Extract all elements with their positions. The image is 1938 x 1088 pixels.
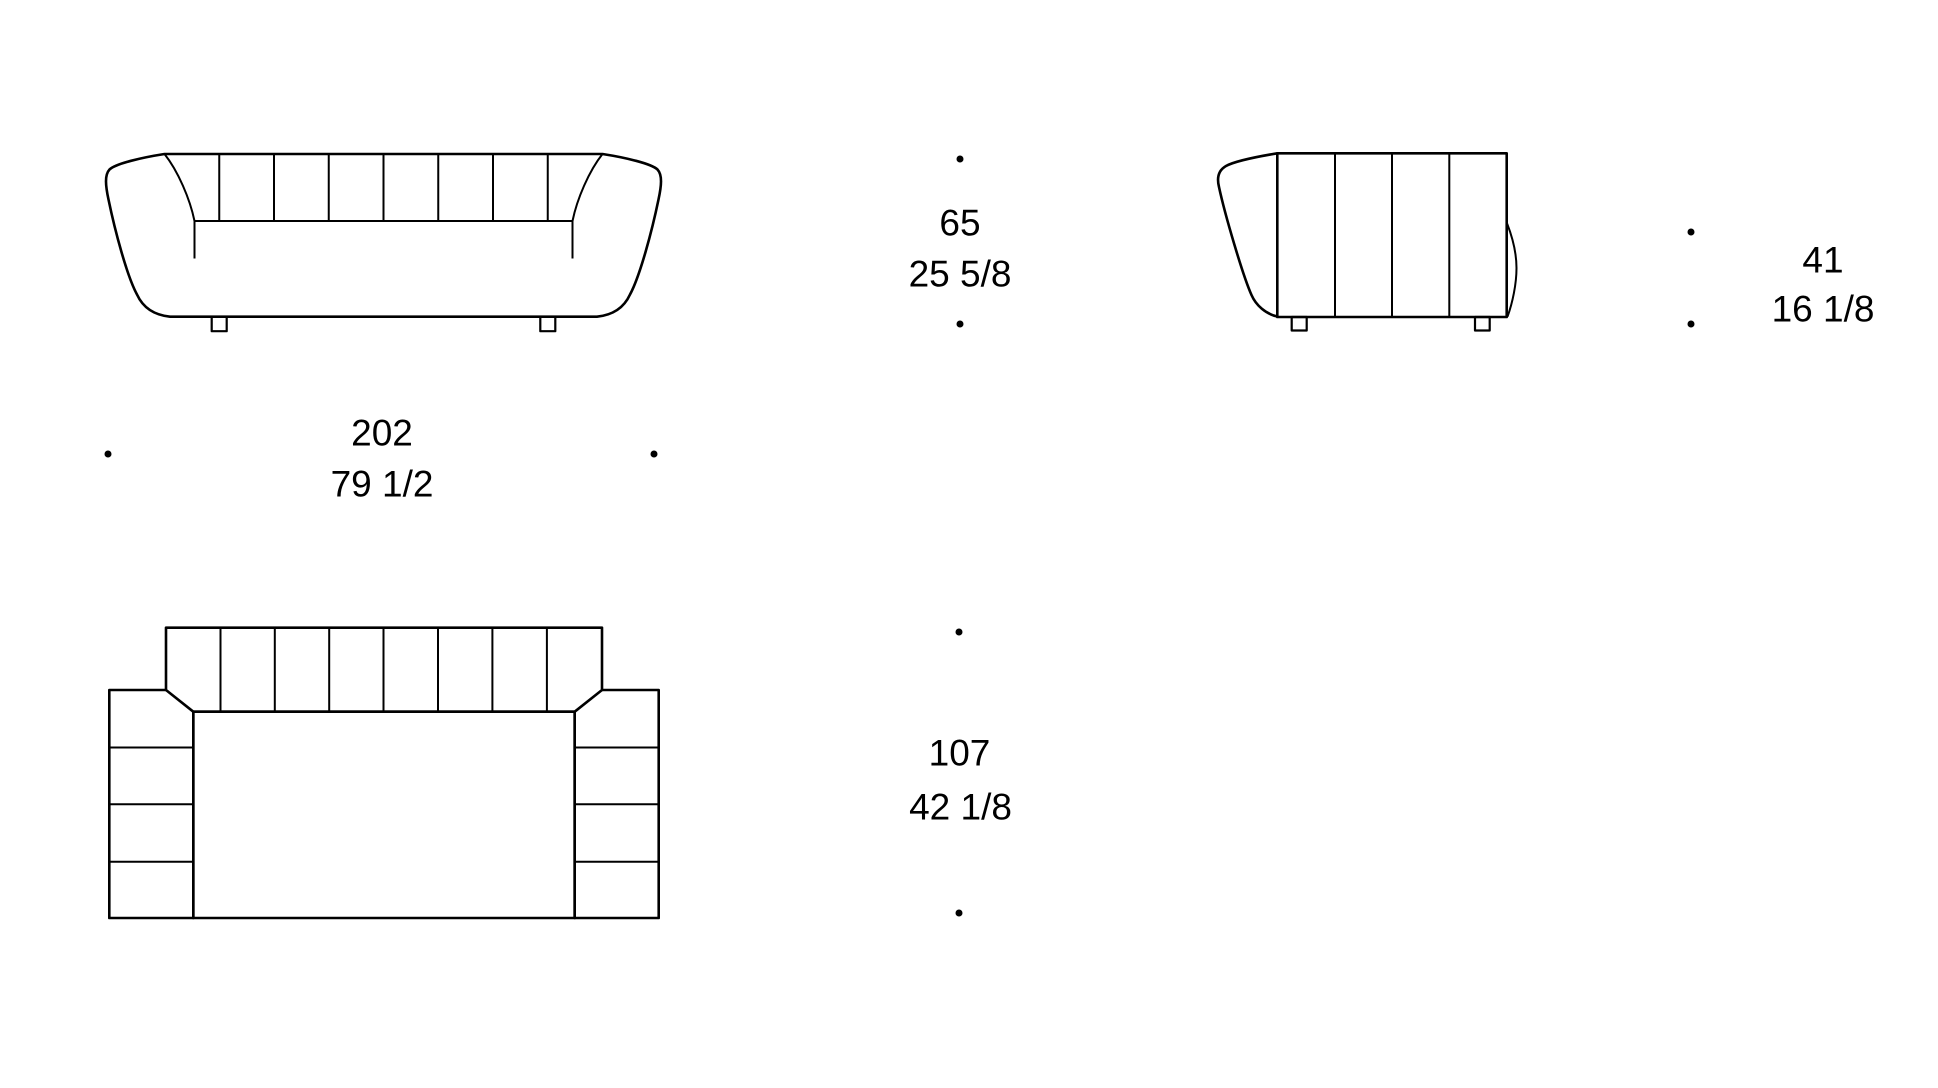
overall-depth-inches-label: 42 1/8 (909, 789, 1012, 826)
overall-width-inches-label: 79 1/2 (331, 466, 434, 503)
top-seat-outline (193, 712, 574, 918)
overall-height-inches-label: 25 5/8 (909, 255, 1012, 292)
seat-height-cm-label: 41 (1802, 242, 1843, 279)
depth-dimension-top-dot (956, 629, 963, 636)
width-dimension-left-dot (105, 451, 112, 458)
top-left-arm-section-lines (109, 748, 193, 862)
height-dimension-top-dot (957, 156, 964, 163)
side-view-drawing (1218, 153, 1516, 330)
overall-height-cm-label: 65 (939, 204, 980, 241)
front-right-foot (540, 317, 555, 332)
side-arm-outline (1218, 153, 1277, 316)
sofa-technical-drawing (0, 0, 1938, 1088)
depth-dimension-bottom-dot (956, 910, 963, 917)
overall-width-cm-label: 202 (351, 415, 413, 452)
top-backrest-channel-lines (221, 628, 547, 712)
overall-depth-cm-label: 107 (929, 734, 991, 771)
front-back-channel-lines (219, 154, 548, 221)
seat-height-dimension-bottom-dot (1687, 321, 1694, 328)
side-right-foot (1475, 317, 1490, 331)
side-back-cushion-curve (1507, 223, 1517, 316)
side-channel-lines (1335, 153, 1449, 317)
seat-height-inches-label: 16 1/8 (1772, 291, 1875, 328)
seat-height-dimension-top-dot (1687, 228, 1694, 235)
height-dimension-bottom-dot (957, 321, 964, 328)
side-left-foot (1292, 317, 1307, 331)
front-view-drawing (106, 154, 661, 331)
front-left-foot (212, 317, 227, 332)
top-right-arm-section-lines (575, 748, 659, 862)
width-dimension-right-dot (651, 451, 658, 458)
dimension-drawing-canvas: 65 25 5/8 41 16 1/8 202 79 1/2 107 42 1/… (0, 0, 1938, 1088)
top-view-drawing (109, 628, 658, 918)
